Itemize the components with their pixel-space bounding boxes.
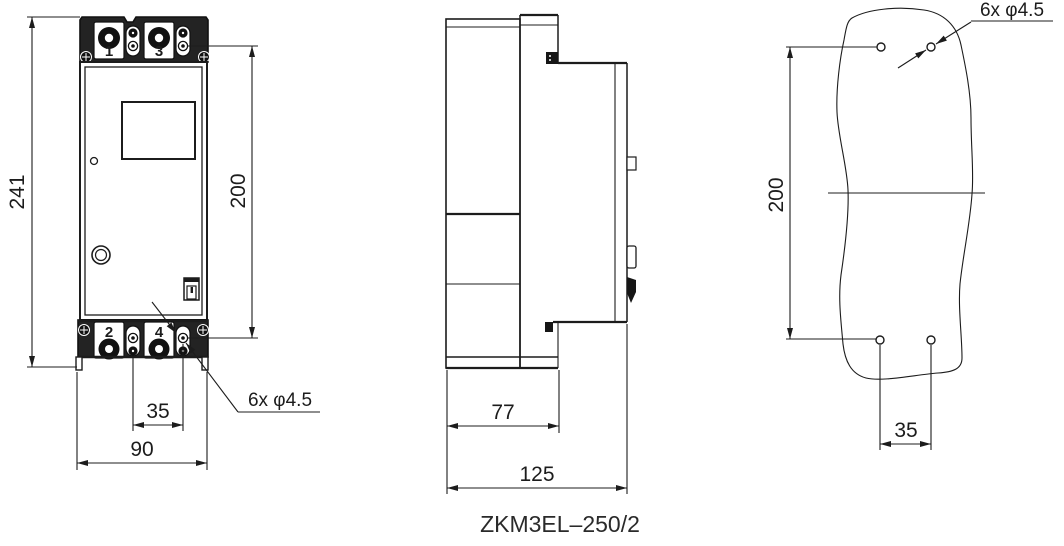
mounting-view (828, 8, 985, 379)
mount-hole-top-left-center (131, 44, 135, 48)
hole-callout-panel: 6x φ4.5 (898, 0, 1053, 68)
panel-hole-top-right (927, 43, 935, 51)
callout-text-front: 6x φ4.5 (248, 390, 312, 411)
terminal-label-2: 2 (105, 324, 113, 341)
callout-text-panel: 6x φ4.5 (980, 0, 1044, 21)
display-window (122, 102, 195, 159)
drawing-svg: 1 3 (0, 0, 1064, 546)
panel-hole-bottom-left (876, 336, 884, 344)
technical-drawing: 1 3 (0, 0, 1064, 546)
mount-tab-upper (627, 157, 636, 170)
dim-text-35-front: 35 (146, 400, 169, 423)
terminal-lug-4-bore (155, 345, 163, 353)
din-clip-bottom (545, 322, 553, 332)
mount-tab-lower (627, 246, 636, 268)
panel-hole-bottom-right (927, 336, 935, 344)
dim-overall-height-241: 241 (6, 17, 80, 367)
screw-top-a-dot (132, 32, 134, 34)
din-clip-top-dot2 (549, 59, 551, 61)
front-top-terminal-cover: 1 3 (80, 17, 208, 62)
mount-hook (627, 277, 636, 303)
dim-text-200-panel: 200 (765, 177, 788, 212)
screw-bottom-a-dot (132, 350, 134, 352)
meter-body (80, 62, 207, 320)
dim-text-90: 90 (130, 438, 153, 461)
foot-left (76, 357, 82, 370)
mount-hole-top-right-center (181, 44, 185, 48)
drawing-caption: ZKM3EL–250/2 (480, 511, 640, 537)
switch-symbol (184, 278, 199, 300)
dim-mounting-width-35-panel: 35 (880, 345, 931, 450)
mount-hole-bottom-left-center (131, 336, 135, 340)
dim-text-77: 77 (491, 401, 514, 424)
terminal-label-4: 4 (155, 324, 164, 341)
din-clip-top-dot1 (549, 55, 551, 57)
dim-text-241: 241 (6, 174, 29, 209)
dim-text-35-panel: 35 (894, 419, 917, 442)
front-view: 1 3 (76, 17, 210, 370)
dim-text-200-front: 200 (227, 173, 250, 208)
din-clip-top (546, 52, 558, 64)
dim-text-125: 125 (519, 463, 554, 486)
seal-screw (92, 246, 110, 264)
led-indicator (91, 158, 98, 165)
side-view (446, 15, 636, 368)
dim-overall-width-90: 90 (77, 372, 207, 470)
panel-hole-top-left (877, 43, 885, 51)
terminal-lug-1-bore (105, 34, 113, 42)
terminal-lug-2-bore (105, 345, 113, 353)
terminal-label-1: 1 (105, 43, 113, 60)
terminal-lug-3-bore (155, 34, 163, 42)
screw-top-b-dot (182, 32, 184, 34)
terminal-label-3: 3 (155, 43, 163, 60)
mount-hole-bottom-right-center (181, 336, 185, 340)
